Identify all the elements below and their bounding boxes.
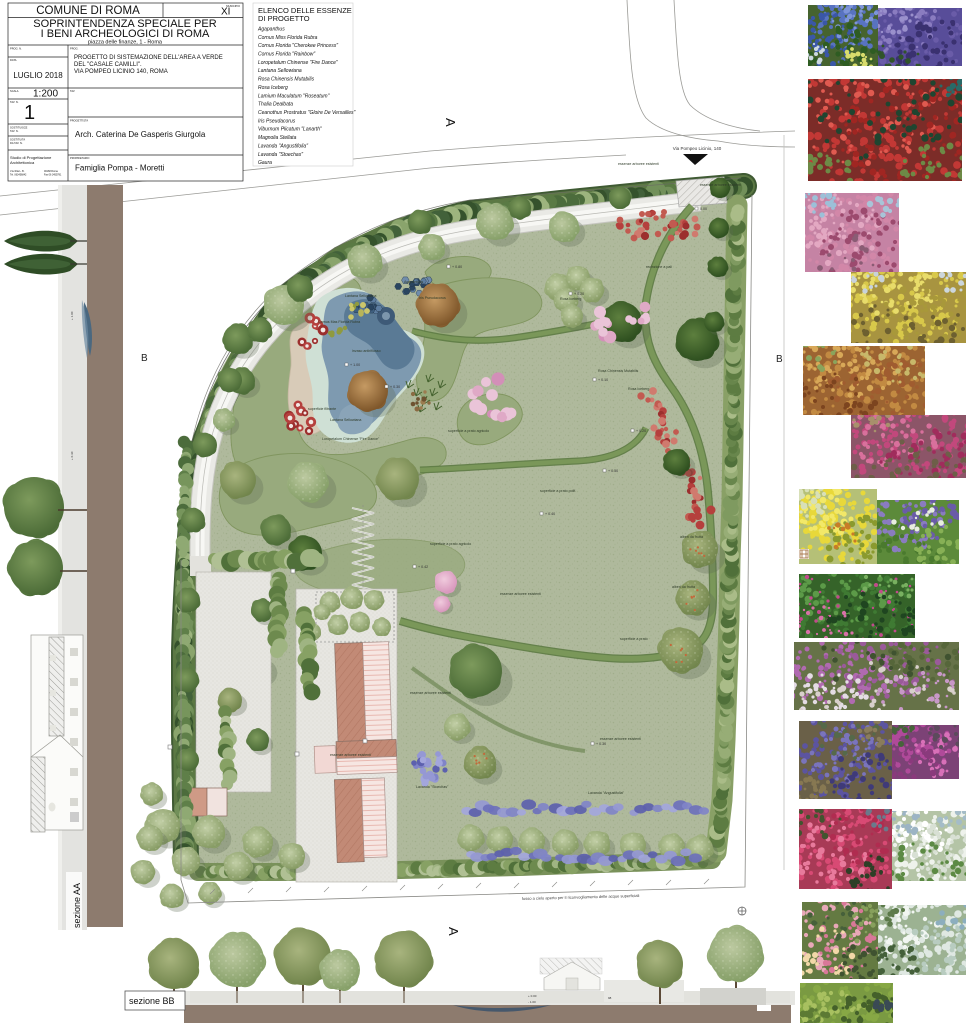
svg-text:essenze arboree esistenti: essenze arboree esistenti: [700, 183, 741, 187]
svg-text:superficie a prato: superficie a prato: [620, 637, 648, 641]
svg-text:A: A: [446, 927, 461, 936]
svg-text:TAV.: TAV.: [70, 89, 75, 93]
svg-text:+ 0.00: + 0.00: [528, 994, 537, 998]
svg-text:TAV. N.: TAV. N.: [10, 100, 19, 104]
svg-text:TAV. N.: TAV. N.: [10, 129, 19, 133]
svg-text:Iris Pseudacorus: Iris Pseudacorus: [258, 118, 296, 124]
svg-text:DATA: DATA: [10, 58, 17, 62]
svg-text:Rosa Iceberg: Rosa Iceberg: [560, 297, 581, 301]
svg-text:sezione BB: sezione BB: [129, 996, 175, 1006]
svg-text:Lamium Maculatum "Roseatum": Lamium Maculatum "Roseatum": [258, 93, 330, 99]
svg-text:invaso antiriflusso: invaso antiriflusso: [352, 349, 381, 353]
svg-text:Rosa Chinensis Mutabilis: Rosa Chinensis Mutabilis: [258, 77, 315, 83]
svg-text:DI PROGETTO: DI PROGETTO: [258, 14, 310, 23]
svg-text:Lavanda "Angustifolia": Lavanda "Angustifolia": [258, 143, 308, 149]
svg-text:XI: XI: [221, 7, 230, 18]
svg-text:+ 0.30: + 0.30: [70, 451, 74, 460]
svg-text:PROG.: PROG.: [70, 47, 79, 51]
svg-text:+ 0.40: + 0.40: [545, 512, 555, 516]
svg-text:COMUNE DI ROMA: COMUNE DI ROMA: [36, 5, 140, 17]
svg-text:Iris Pseudacorus: Iris Pseudacorus: [419, 296, 446, 300]
svg-text:+ 0.42: + 0.42: [418, 565, 428, 569]
svg-text:Agapanthus: Agapanthus: [404, 280, 423, 284]
svg-text:A: A: [443, 118, 458, 127]
svg-text:+ 0.20: + 0.20: [574, 292, 584, 296]
svg-text:Lavanda "Stoechas": Lavanda "Stoechas": [258, 152, 303, 158]
svg-text:PROPRIETARIO: PROPRIETARIO: [70, 156, 89, 160]
svg-text:Rosa Iceberg: Rosa Iceberg: [628, 387, 649, 391]
svg-text:+ 1.00: + 1.00: [350, 363, 360, 367]
svg-text:PROGETTO DI SISTEMAZIONE DELL': PROGETTO DI SISTEMAZIONE DELL'AREA A VER…: [74, 55, 223, 61]
svg-text:- 1.00: - 1.00: [528, 1000, 536, 1004]
svg-text:Loropetalum Chinense "Fire Dan: Loropetalum Chinense "Fire Dance": [322, 437, 380, 441]
svg-text:recinzione a pali: recinzione a pali: [646, 265, 672, 269]
svg-text:+ 0.10: + 0.10: [598, 378, 608, 382]
svg-text:Gaura: Gaura: [258, 160, 272, 166]
svg-text:Agapanthus: Agapanthus: [257, 27, 285, 33]
svg-text:Cornus Florida "Cherokee Princ: Cornus Florida "Cherokee Princess": [258, 43, 338, 49]
svg-text:Thalia Dealbata: Thalia Dealbata: [258, 102, 293, 108]
svg-text:B: B: [776, 354, 783, 365]
svg-text:essenze arboree esistenti: essenze arboree esistenti: [330, 753, 371, 757]
svg-text:Rosa Iceberg: Rosa Iceberg: [258, 85, 288, 91]
svg-text:essenze arboree esistenti: essenze arboree esistenti: [410, 691, 451, 695]
svg-text:Viburnum Plicatum "Lanarth": Viburnum Plicatum "Lanarth": [258, 127, 322, 133]
svg-text:98: 98: [608, 996, 612, 1000]
svg-text:Magnolia Stellata: Magnolia Stellata: [258, 135, 297, 141]
svg-text:Lantana Sellowiana: Lantana Sellowiana: [258, 68, 302, 74]
svg-text:Famiglia Pompa - Moretti: Famiglia Pompa - Moretti: [75, 164, 165, 173]
svg-text:I BENI ARCHEOLOGICI DI ROMA: I BENI ARCHEOLOGICI DI ROMA: [41, 28, 210, 40]
svg-text:DEL "CASALE CAMILLI".: DEL "CASALE CAMILLI".: [74, 62, 142, 68]
svg-text:Cornus Miss Florida Rubra: Cornus Miss Florida Rubra: [258, 35, 318, 41]
svg-text:1:200: 1:200: [33, 89, 58, 100]
svg-text:PROG. N.: PROG. N.: [10, 47, 22, 51]
svg-text:+ 0.30: + 0.30: [596, 742, 606, 746]
svg-text:Lavanda "Stoechas": Lavanda "Stoechas": [416, 785, 449, 789]
svg-text:SOSTITUITA: SOSTITUITA: [10, 138, 25, 142]
svg-text:SOSTITUISCE: SOSTITUISCE: [10, 126, 28, 130]
svg-text:Tel. 063456842: Tel. 063456842: [10, 174, 27, 177]
svg-text:superficie filtrante: superficie filtrante: [308, 407, 336, 411]
svg-text:1: 1: [24, 102, 35, 124]
svg-text:Fax 06 3455781: Fax 06 3455781: [44, 174, 62, 177]
svg-text:Rosa Chinensis Mutabilis: Rosa Chinensis Mutabilis: [598, 369, 639, 373]
svg-text:Ceanothus Prostratus "Gloire D: Ceanothus Prostratus "Gloire De Versaill…: [258, 110, 356, 116]
svg-text:essenze arboree esistenti: essenze arboree esistenti: [600, 737, 641, 741]
svg-text:alberi da frutta: alberi da frutta: [680, 535, 703, 539]
svg-text:+ 1.00: + 1.00: [70, 311, 74, 320]
svg-text:+ 0.50: + 0.50: [608, 469, 618, 473]
svg-text:Via Pompeo Licinio, 140: Via Pompeo Licinio, 140: [673, 146, 722, 151]
svg-text:sezione AA: sezione AA: [72, 883, 82, 928]
svg-text:Lantana Sellowiana: Lantana Sellowiana: [345, 294, 376, 298]
svg-text:Lavanda "Angustifolia": Lavanda "Angustifolia": [588, 791, 625, 795]
svg-text:SCALA: SCALA: [10, 89, 19, 93]
svg-text:Loropetalum Chinense "Fire Dan: Loropetalum Chinense "Fire Dance": [258, 60, 338, 66]
svg-text:Cornus Mas Florida Rubra: Cornus Mas Florida Rubra: [318, 320, 360, 324]
svg-text:DA TAV. N.: DA TAV. N.: [10, 141, 23, 145]
svg-text:B: B: [141, 353, 148, 364]
svg-text:alberi da frutta: alberi da frutta: [672, 585, 695, 589]
svg-text:+ 0.30: + 0.30: [390, 385, 400, 389]
svg-text:piazza delle finanze, 1 - Roma: piazza delle finanze, 1 - Roma: [88, 40, 163, 46]
svg-text:VIA POMPEO LICINIO 140, ROMA: VIA POMPEO LICINIO 140, ROMA: [74, 69, 168, 75]
svg-text:Cornus Florida "Rainbow": Cornus Florida "Rainbow": [258, 52, 315, 58]
svg-text:0.00: 0.00: [700, 207, 707, 211]
svg-text:Architettonica: Architettonica: [10, 160, 35, 165]
svg-text:+ 0.20: + 0.20: [636, 429, 646, 433]
svg-text:essenze arboree esistenti: essenze arboree esistenti: [500, 592, 541, 596]
svg-text:PROGETTISTA: PROGETTISTA: [70, 119, 88, 123]
svg-text:+ 0.80: + 0.80: [452, 265, 462, 269]
svg-text:LUGLIO 2018: LUGLIO 2018: [13, 71, 63, 80]
svg-text:Arch. Caterina De Gasperis Giu: Arch. Caterina De Gasperis Giurgola: [75, 130, 206, 139]
svg-text:superficie a prato polif.: superficie a prato polif.: [540, 489, 576, 493]
svg-text:essenze arboree esistenti: essenze arboree esistenti: [618, 162, 659, 166]
svg-text:superficie a prato agricolo: superficie a prato agricolo: [448, 429, 489, 433]
svg-text:Lantana Sellowiana: Lantana Sellowiana: [330, 418, 361, 422]
svg-text:superficie a prato agricolo: superficie a prato agricolo: [430, 542, 471, 546]
